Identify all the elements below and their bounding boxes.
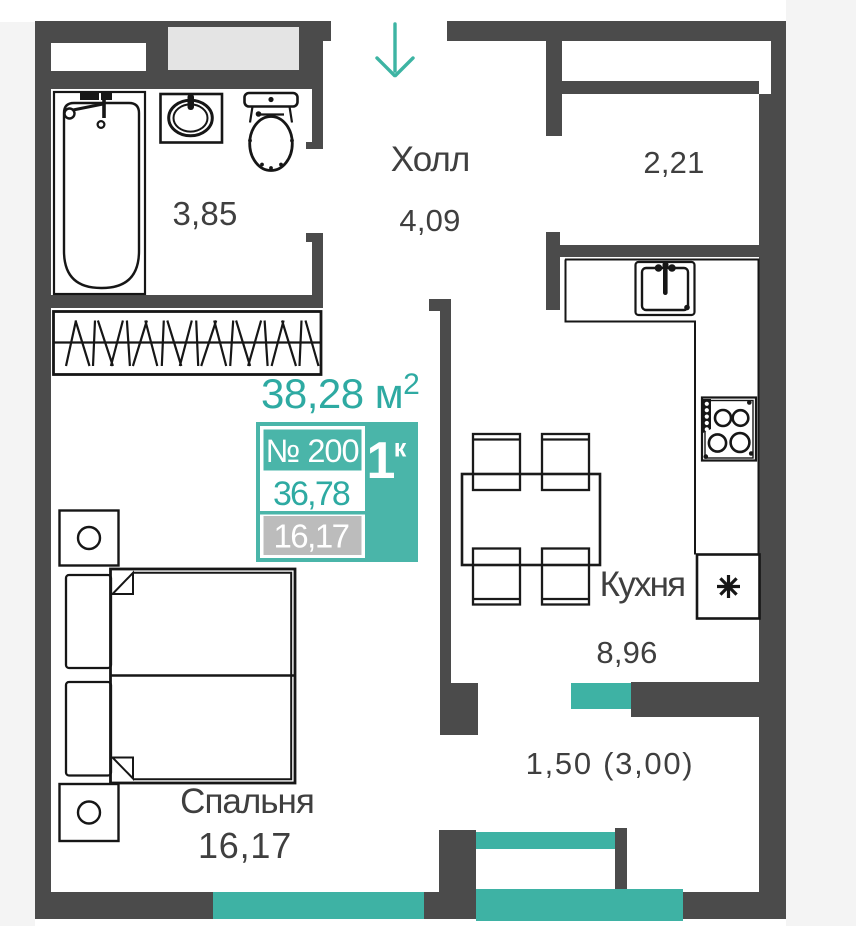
svg-text:38,28 м2: 38,28 м2 [261,368,419,417]
svg-text:Холл: Холл [391,140,470,179]
svg-text:1: 1 [367,432,396,490]
svg-text:Спальня: Спальня [180,782,314,821]
svg-text:16,17: 16,17 [198,825,292,866]
svg-text:2,21: 2,21 [643,145,704,180]
svg-text:36,78: 36,78 [273,475,350,513]
svg-text:№ 200: № 200 [265,433,358,469]
svg-text:к: к [394,435,407,463]
svg-text:1,50 (3,00): 1,50 (3,00) [526,746,695,781]
svg-text:3,85: 3,85 [172,195,237,232]
svg-text:Кухня: Кухня [600,565,685,604]
svg-text:8,96: 8,96 [596,635,657,670]
svg-text:16,17: 16,17 [273,518,348,555]
svg-text:4,09: 4,09 [399,203,460,238]
